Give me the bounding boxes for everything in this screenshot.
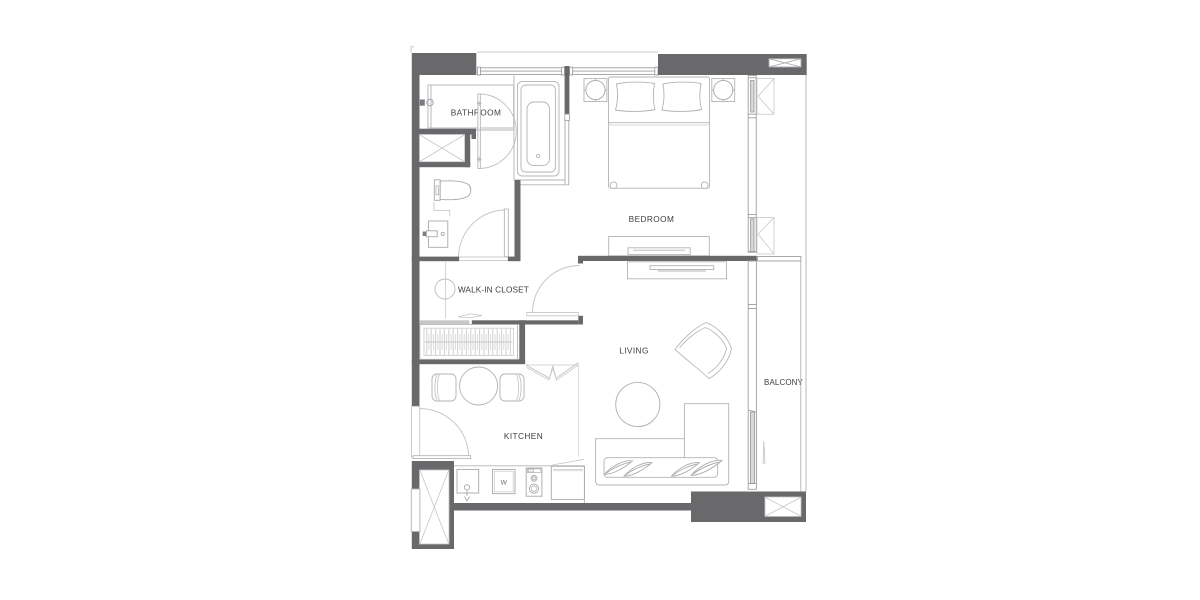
svg-text:BALCONY: BALCONY bbox=[764, 378, 803, 387]
svg-text:BEDROOM: BEDROOM bbox=[629, 214, 675, 224]
svg-text:WALK-IN CLOSET: WALK-IN CLOSET bbox=[458, 284, 529, 294]
svg-text:LIVING: LIVING bbox=[619, 346, 649, 356]
svg-text:BATHROOM: BATHROOM bbox=[451, 107, 502, 117]
svg-text:KITCHEN: KITCHEN bbox=[504, 431, 543, 441]
svg-text:W: W bbox=[501, 479, 508, 486]
